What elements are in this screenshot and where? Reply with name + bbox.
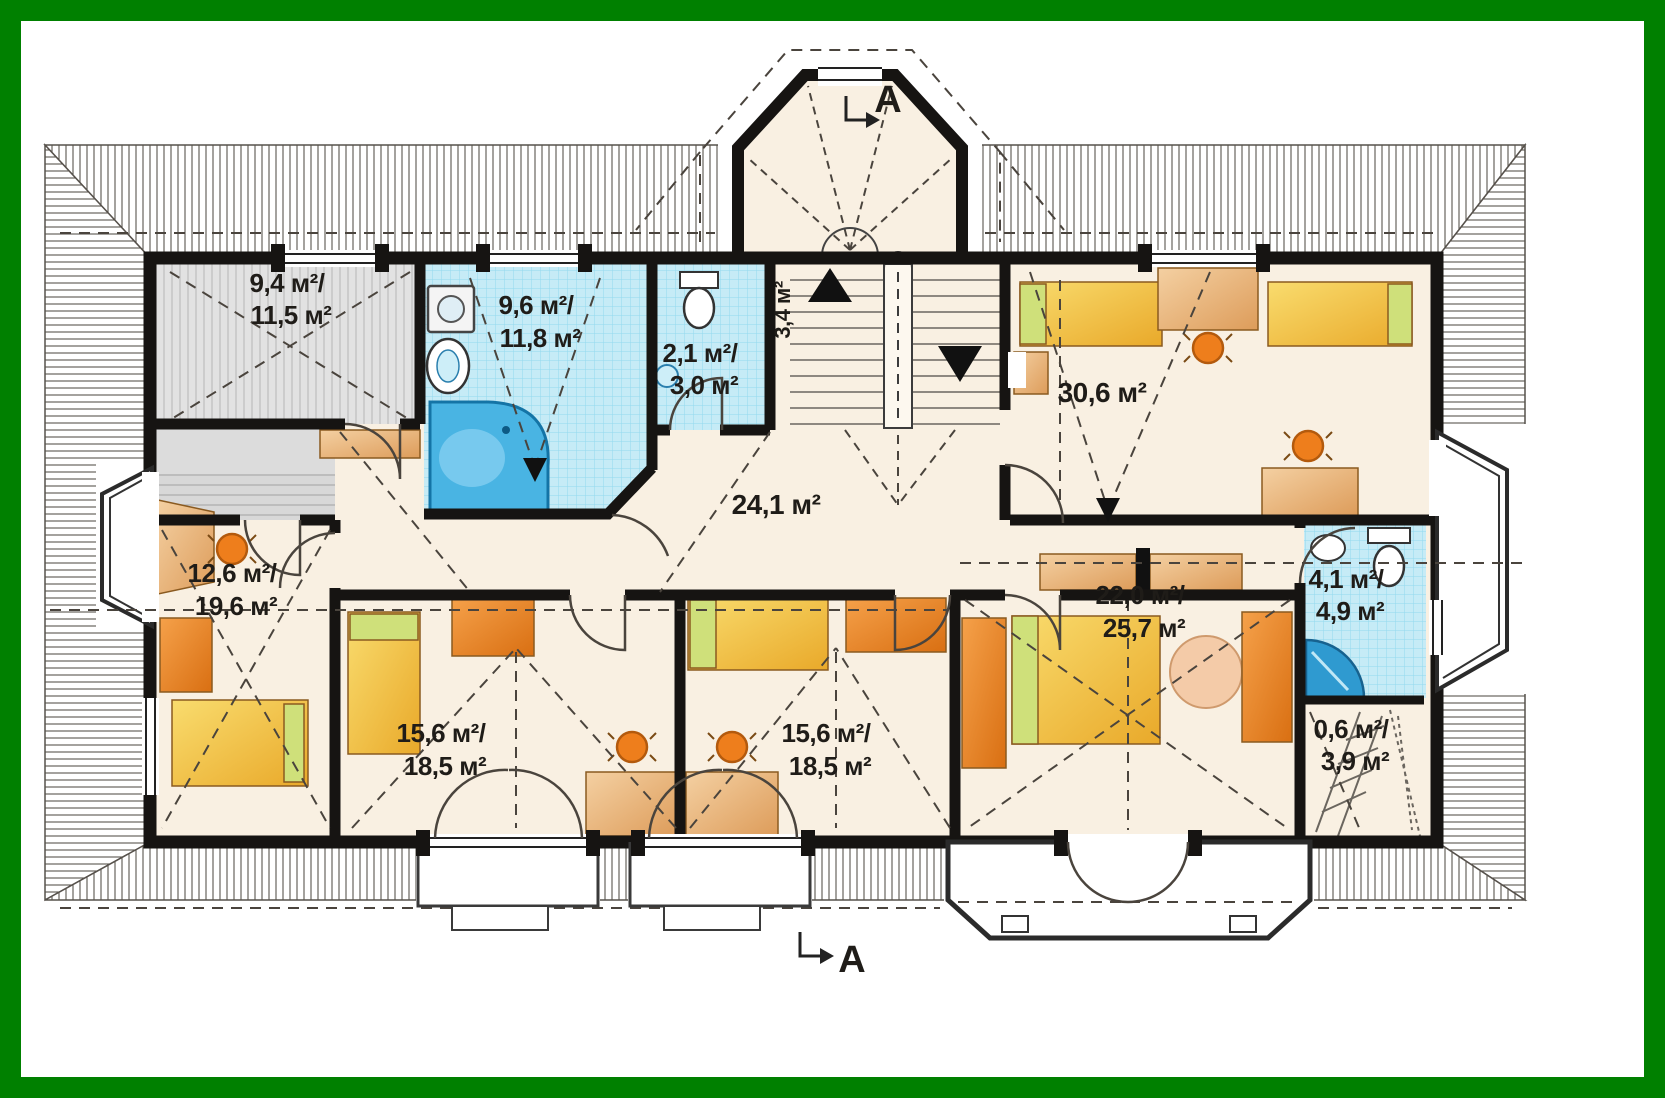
toilet-tank bbox=[1368, 528, 1410, 543]
window-left bbox=[142, 698, 159, 795]
label-bedroom-left-2: 19,6 м² bbox=[195, 591, 278, 621]
wardrobe bbox=[160, 618, 212, 692]
label-stair-hall: 3,4 м² bbox=[770, 281, 795, 338]
label-bedroom-bottom-2a: 15,6 м²/ bbox=[782, 718, 871, 748]
bay-opening-left bbox=[142, 472, 159, 622]
label-bathroom-main-1: 9,6 м²/ bbox=[499, 290, 574, 320]
label-bedroom-right: 30,6 м² bbox=[1058, 377, 1147, 408]
label-bathroom-small-1: 4,1 м²/ bbox=[1309, 564, 1384, 594]
label-bedroom-bottom-1b: 18,5 м² bbox=[404, 751, 487, 781]
label-storage-small-1: 0,6 м²/ bbox=[1314, 714, 1389, 744]
bed-pillow bbox=[1020, 284, 1046, 344]
stair-wall-niche bbox=[1008, 352, 1026, 388]
label-bedroom-master-1: 22,0 м²/ bbox=[1096, 580, 1185, 610]
floor-plan-page: A A 9,4 м²/ 11,5 м² 9,6 м²/ 11,8 м² 2,1 … bbox=[0, 0, 1665, 1098]
landing-gray-floor bbox=[156, 424, 335, 474]
label-storage-top-left-2: 11,5 м² bbox=[251, 300, 333, 330]
label-bedroom-bottom-1a: 15,6 м²/ bbox=[397, 718, 486, 748]
window-right-bath bbox=[1429, 600, 1446, 655]
bed-pillow bbox=[1388, 284, 1412, 344]
desk bbox=[1262, 468, 1358, 516]
label-storage-small-2: 3,9 м² bbox=[1321, 746, 1390, 776]
label-bathroom-small-2: 4,9 м² bbox=[1316, 596, 1385, 626]
label-bedroom-left-1: 12,6 м²/ bbox=[188, 558, 277, 588]
bay-opening-right bbox=[1429, 440, 1446, 516]
wardrobe bbox=[452, 598, 534, 656]
rug bbox=[1170, 636, 1242, 708]
toilet-tank bbox=[680, 272, 718, 288]
label-hall: 24,1 м² bbox=[732, 489, 821, 520]
label-bathroom-main-2: 11,8 м² bbox=[500, 323, 582, 353]
label-storage-top-left-1: 9,4 м²/ bbox=[250, 268, 325, 298]
dresser bbox=[1242, 612, 1292, 742]
sideboard bbox=[320, 430, 420, 458]
label-wc-2: 3,0 м² bbox=[670, 370, 739, 400]
floor-plan-canvas: A A 9,4 м²/ 11,5 м² 9,6 м²/ 11,8 м² 2,1 … bbox=[0, 0, 1665, 1098]
section-marker-bottom: A bbox=[838, 939, 865, 981]
bay-window-right bbox=[1437, 432, 1507, 690]
label-bedroom-bottom-2b: 18,5 м² bbox=[789, 751, 872, 781]
sink bbox=[1311, 535, 1345, 561]
wardrobe bbox=[962, 618, 1006, 768]
desk bbox=[586, 772, 678, 836]
bed-pillow bbox=[284, 704, 304, 782]
label-wc-1: 2,1 м²/ bbox=[663, 338, 738, 368]
label-bedroom-master-2: 25,7 м² bbox=[1103, 613, 1186, 643]
toilet bbox=[684, 288, 714, 328]
section-marker-top: A bbox=[874, 79, 901, 121]
bed-pillow bbox=[350, 614, 418, 640]
